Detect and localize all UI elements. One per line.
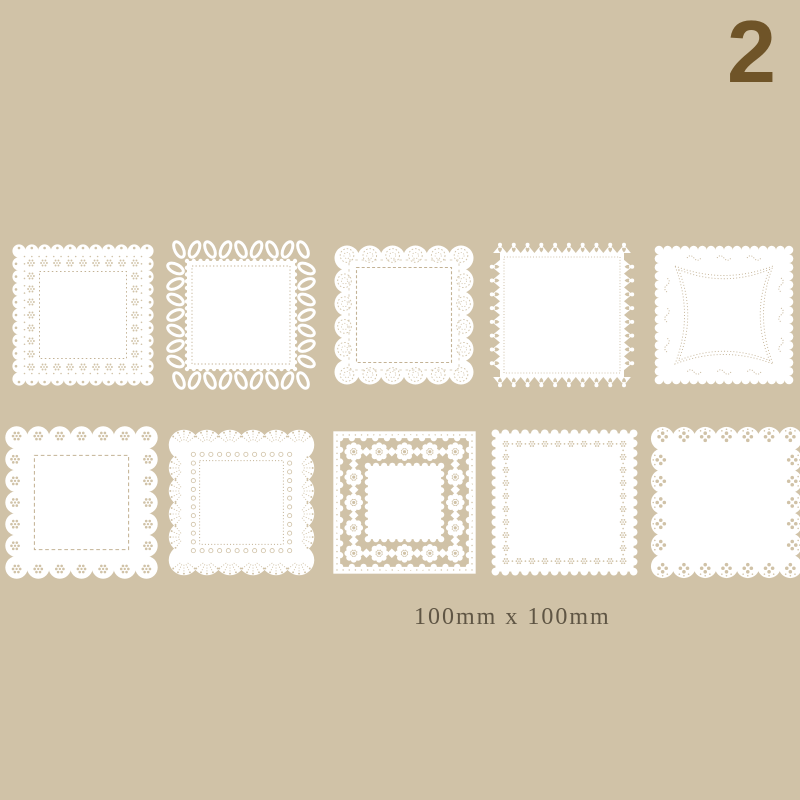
doily-curved-dot-frame — [649, 240, 799, 390]
doily-openwork-flower-band — [326, 424, 483, 581]
product-image: 2 100mm x 100mm — [0, 0, 800, 800]
doily-flower-dot-border — [486, 424, 643, 581]
doily-loop-lace — [166, 240, 316, 390]
doily-daisy-medallion-scallop — [3, 424, 160, 581]
variant-number-badge: 2 — [727, 8, 776, 96]
doily-heart-picot — [487, 240, 637, 390]
doily-dotted-medallion-scallop — [329, 240, 479, 390]
doily-fan-shell — [163, 424, 320, 581]
doily-clover-scallop — [648, 424, 800, 581]
size-caption: 100mm x 100mm — [414, 604, 611, 631]
doily-eyelet-scallop — [8, 240, 158, 390]
